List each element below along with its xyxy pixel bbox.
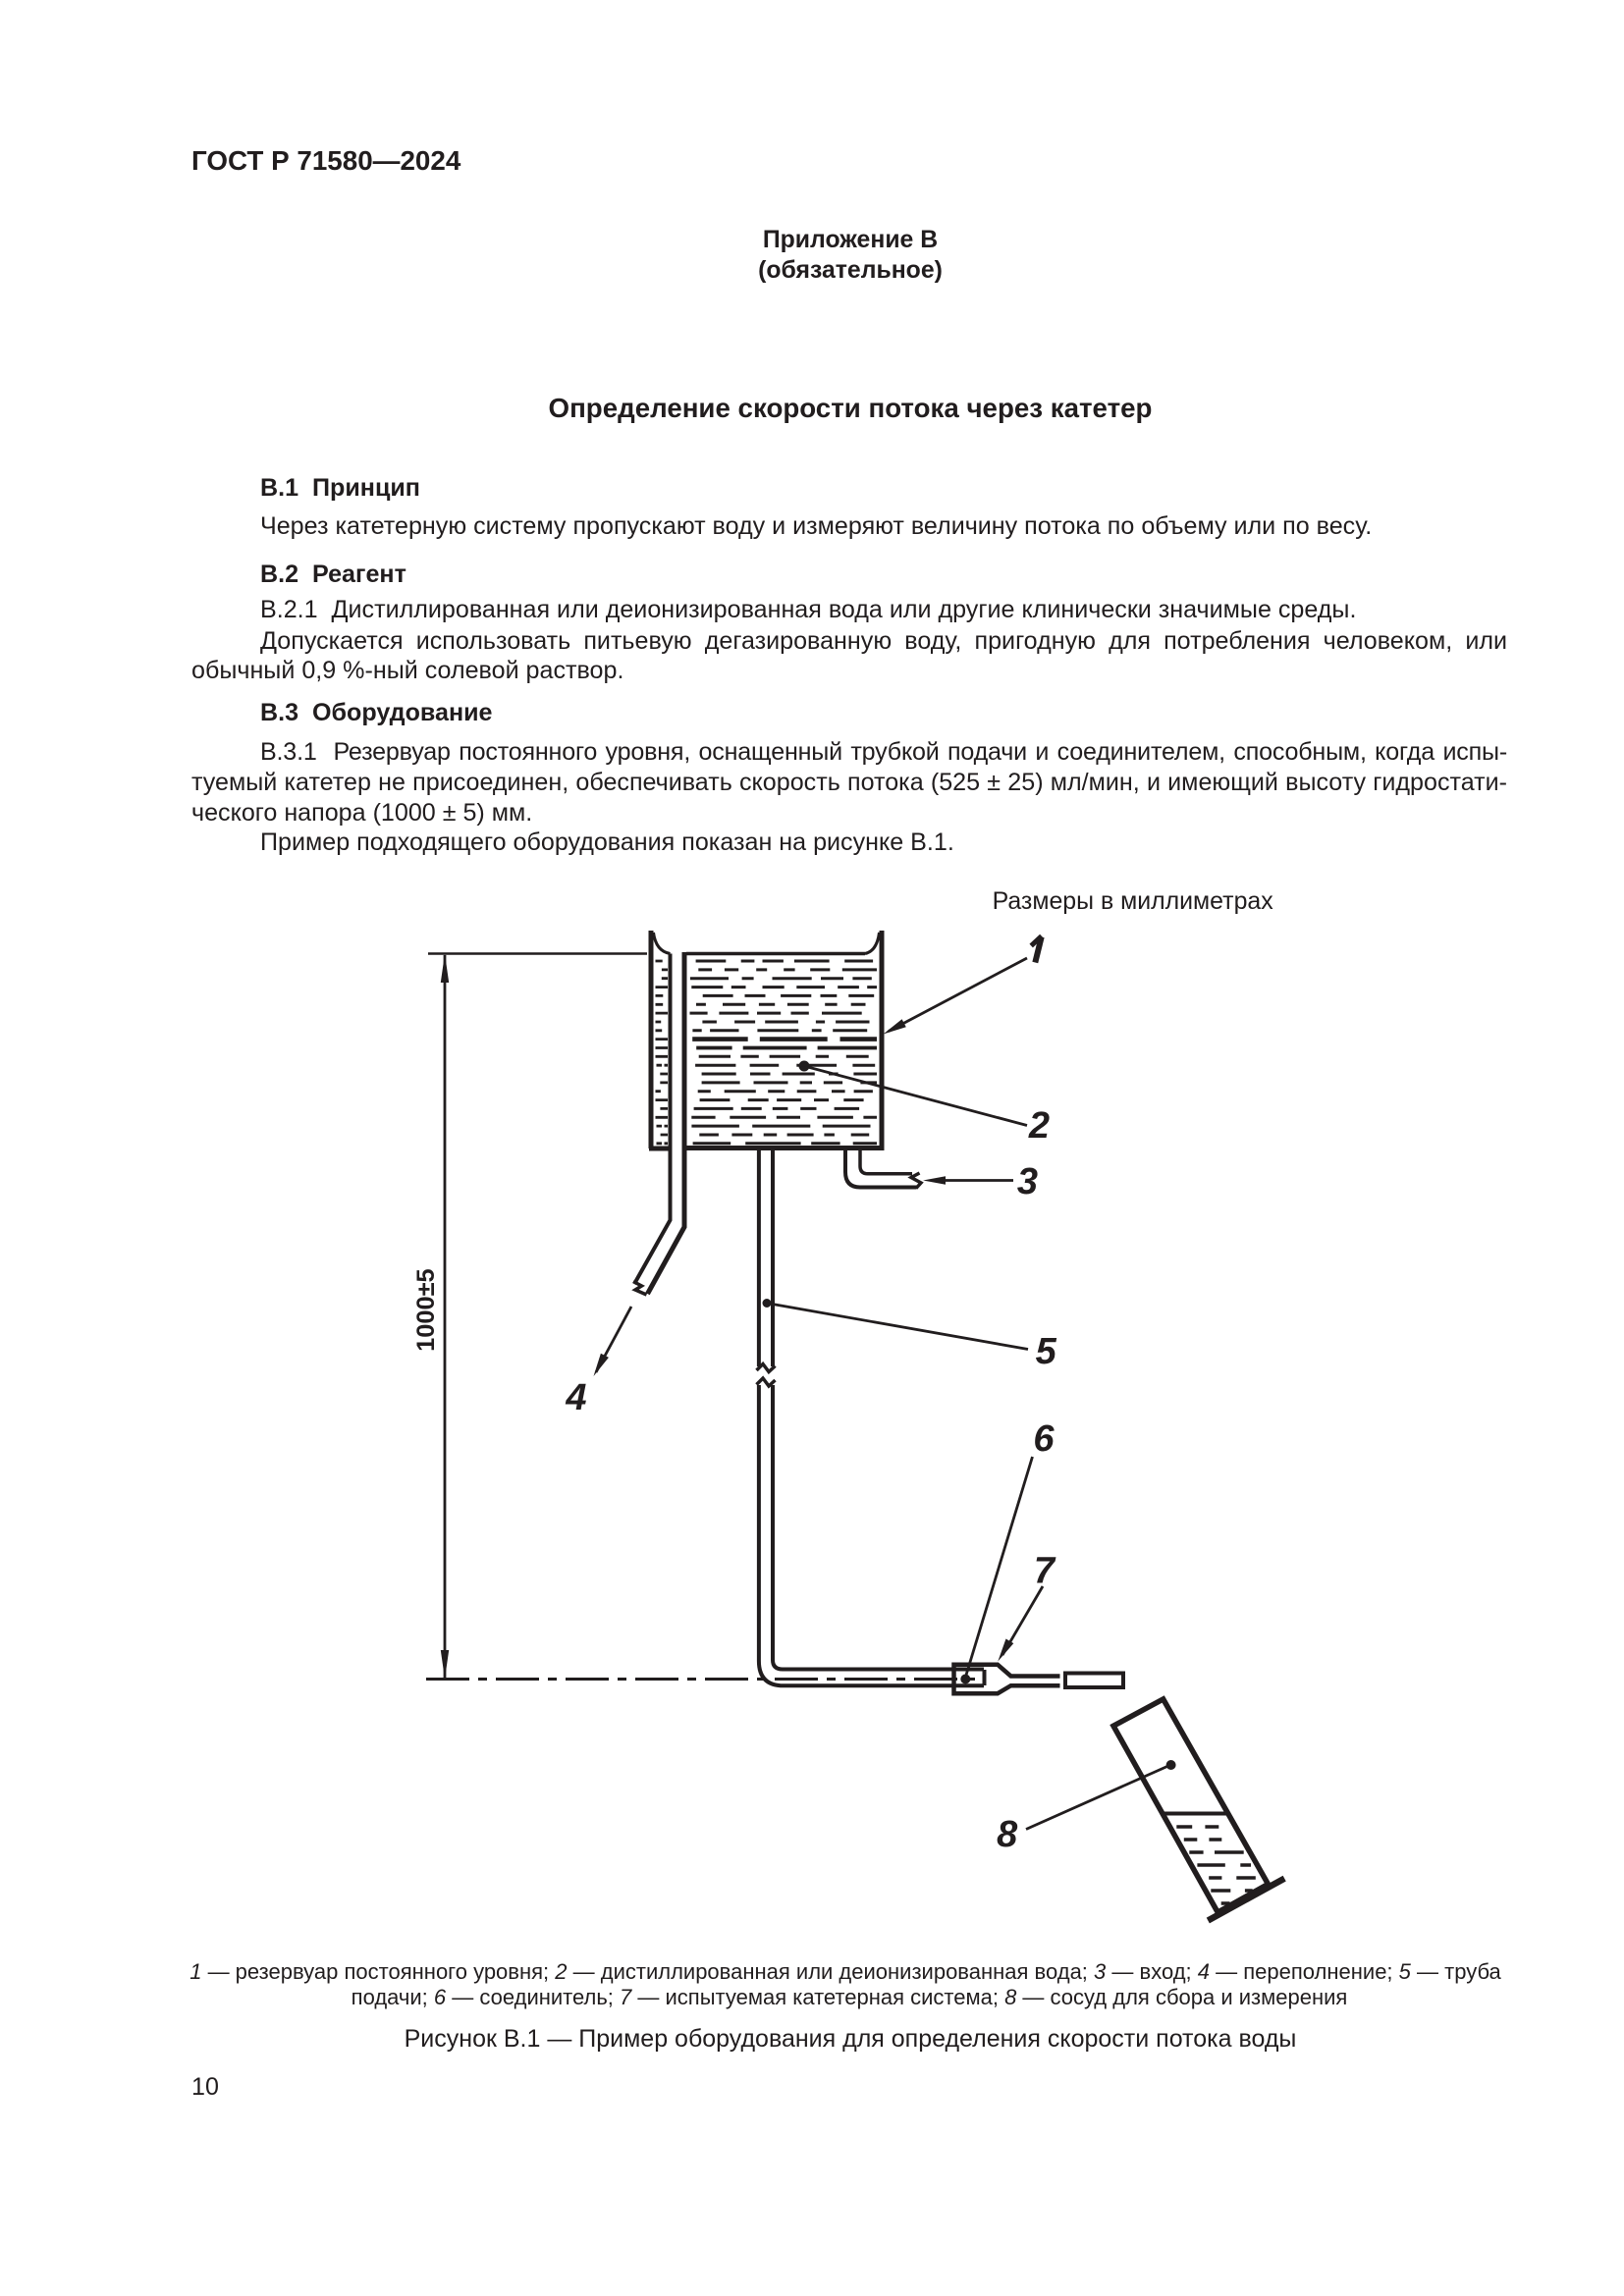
svg-text:2: 2 xyxy=(1028,1105,1050,1147)
svg-text:6: 6 xyxy=(1033,1418,1055,1460)
svg-text:5: 5 xyxy=(1036,1331,1057,1372)
svg-text:3: 3 xyxy=(1017,1161,1038,1202)
svg-text:7: 7 xyxy=(1034,1551,1056,1592)
svg-text:1000±5: 1000±5 xyxy=(412,1268,440,1352)
svg-text:4: 4 xyxy=(565,1377,586,1418)
svg-text:8: 8 xyxy=(997,1814,1018,1855)
